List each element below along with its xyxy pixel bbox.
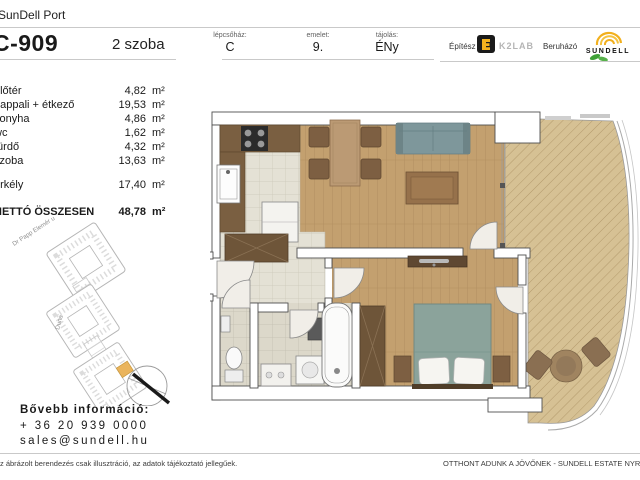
- bed: [412, 304, 493, 389]
- orientation-label: tájolás:: [353, 32, 421, 39]
- planter: [545, 116, 571, 120]
- architect-name: K2LAB: [499, 41, 534, 51]
- logos-underline: [440, 61, 640, 62]
- area-unit: m²: [152, 126, 165, 140]
- table-row-balcony: erkély 17,40 m²: [0, 178, 184, 192]
- hall-wardrobe: [225, 234, 288, 262]
- header-divider: [0, 27, 640, 28]
- contact-title: Bővebb információ:: [20, 404, 150, 416]
- orientation-value: ÉNy: [353, 40, 421, 54]
- table-row: előtér 4,82 m²: [0, 84, 184, 98]
- unit-type: 2 szoba: [112, 36, 165, 53]
- room-name: előtér: [0, 84, 22, 98]
- dining-table: [330, 120, 360, 186]
- vanity: [261, 364, 291, 386]
- table-row: konyha 4,86 m²: [0, 112, 184, 126]
- toilet-tank: [225, 370, 243, 382]
- room-name: nappali + étkező: [0, 98, 74, 112]
- title-underline: [0, 59, 176, 60]
- area-unit: m²: [152, 178, 165, 192]
- dining-chair: [361, 159, 381, 179]
- room-area-table: előtér 4,82 m² nappali + étkező 19,53 m²…: [0, 84, 184, 224]
- meta-orientation: tájolás: ÉNy: [353, 32, 421, 54]
- site-plan: Dr Papp Elemér u Duna: [2, 216, 180, 406]
- bedroom-wardrobe: [360, 306, 385, 386]
- room-name: erkély: [0, 178, 23, 192]
- floor-label: emelet:: [284, 32, 352, 39]
- area-unit: m²: [152, 140, 165, 154]
- brand-name: SunDell Port: [0, 8, 65, 22]
- wc-basin: [221, 316, 230, 332]
- developer-name: SUNDELL: [586, 48, 630, 55]
- planter: [580, 114, 610, 118]
- meta-underline: [222, 59, 434, 60]
- tv: [419, 259, 449, 263]
- contact-block: Bővebb információ: + 36 20 939 0000 sale…: [20, 404, 150, 450]
- room-area: 4,82: [125, 84, 146, 98]
- cooktop: [241, 126, 268, 151]
- unit-id: C-909: [0, 30, 58, 57]
- staircase-value: C: [196, 40, 264, 54]
- room-area: 13,63: [118, 154, 146, 168]
- table-row: nappali + étkező 19,53 m²: [0, 98, 184, 112]
- tv-console: [408, 256, 467, 267]
- pillow: [453, 357, 484, 385]
- meta-floor: emelet: 9.: [284, 32, 352, 54]
- nightstand: [394, 356, 411, 382]
- dining-chair: [309, 159, 329, 179]
- area-unit: m²: [152, 112, 165, 126]
- pillow: [418, 357, 449, 385]
- bathtub: [322, 303, 352, 387]
- sofa: [396, 123, 470, 154]
- contact-phone: + 36 20 939 0000: [20, 420, 150, 432]
- table-row: wc 1,62 m²: [0, 126, 184, 140]
- coffee-table: [406, 172, 458, 204]
- area-unit: m²: [152, 154, 165, 168]
- room-name: fürdő: [0, 140, 19, 154]
- room-area: 1,62: [125, 126, 146, 140]
- room-area: 19,53: [118, 98, 146, 112]
- room-area: 17,40: [118, 178, 146, 192]
- room-name: konyha: [0, 112, 29, 126]
- sundell-arc-inner: [605, 40, 614, 45]
- dining-chair: [361, 127, 381, 147]
- footer-divider: [0, 453, 640, 454]
- room-name: szoba: [0, 154, 23, 168]
- floor-value: 9.: [284, 40, 352, 54]
- street-label: Dr Papp Elemér u: [11, 216, 57, 248]
- area-unit: m²: [152, 98, 165, 112]
- room-area: 4,86: [125, 112, 146, 126]
- contact-email: sales@sundell.hu: [20, 435, 150, 447]
- staircase-label: lépcsőház:: [196, 32, 264, 39]
- floor-plan: [210, 88, 640, 440]
- footer-slogan: OTTHONT ADUNK A JÖVŐNEK - SUNDELL ESTATE…: [443, 459, 640, 468]
- architect-label: Építész: [449, 42, 476, 51]
- balcony-table-top: [556, 356, 576, 376]
- drain: [334, 368, 340, 374]
- flyer-page: SunDell Port C-909 2 szoba lépcsőház: C …: [0, 0, 640, 480]
- k2lab-glyph: [477, 35, 495, 53]
- room-name: wc: [0, 126, 7, 140]
- room-area: 4,32: [125, 140, 146, 154]
- headboard: [412, 384, 493, 389]
- nightstand: [493, 356, 510, 382]
- developer-label: Beruházó: [543, 42, 577, 51]
- area-unit: m²: [152, 84, 165, 98]
- table-row: fürdő 4,32 m²: [0, 140, 184, 154]
- meta-staircase: lépcsőház: C: [196, 32, 264, 54]
- faucet: [226, 170, 230, 174]
- toilet: [226, 347, 242, 369]
- footer-disclaimer: Az ábrázolt berendezés csak illusztráció…: [0, 459, 237, 468]
- k2lab-logo: [477, 35, 495, 53]
- sundell-logo: SUNDELL: [580, 28, 636, 69]
- dining-chair: [309, 127, 329, 147]
- table-row: szoba 13,63 m²: [0, 154, 184, 168]
